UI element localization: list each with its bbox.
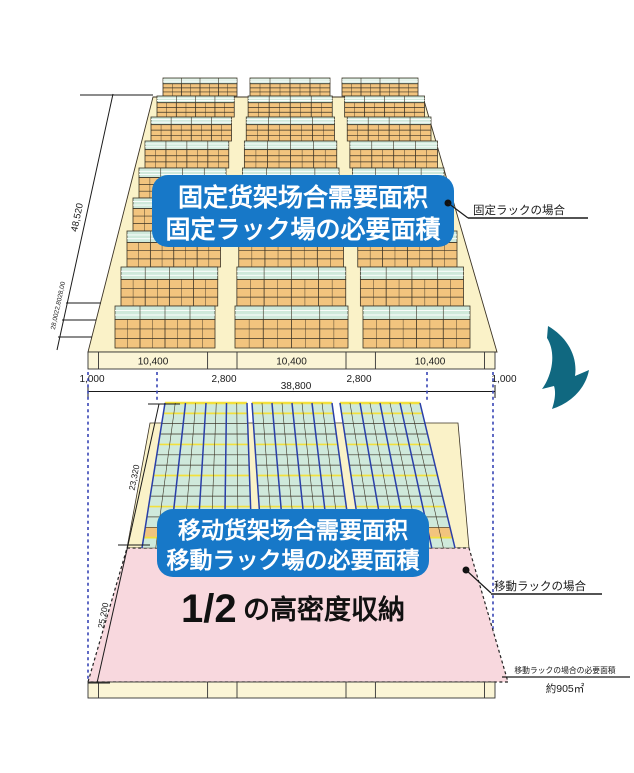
fixed-rack-badge-line2: 固定ラック場の必要面積 — [165, 215, 440, 244]
rack-row — [235, 306, 348, 348]
base-segment-label: 10,400 — [138, 357, 169, 368]
rack-row — [121, 267, 218, 306]
dim-aisle-left: 2,800 — [211, 374, 236, 385]
diagram-canvas: 10,400 10,400 10,400 1,000 2,800 2,800 1… — [0, 0, 634, 773]
mobile-rack-badge-line2: 移動ラック場の必要面積 — [167, 547, 421, 573]
fixed-rack-callout-label: 固定ラックの場合 — [473, 203, 565, 217]
rack-row — [244, 141, 336, 168]
fixed-rack-callout: 固定ラックの場合 — [445, 200, 589, 219]
rack-row — [345, 96, 425, 117]
mobile-rack-callout-label: 移動ラックの場合 — [494, 579, 586, 593]
mobile-rack-callout: 移動ラックの場合 — [463, 567, 603, 595]
fixed-rack-badge-line1: 固定货架场合需要面积 — [178, 183, 428, 212]
area-note: 移動ラックの場合の必要面積 約905㎡ — [502, 665, 630, 695]
mobile-rack-badge: 移动货架场合需要面积 移動ラック場の必要面積 — [157, 509, 429, 577]
rack-row — [145, 141, 229, 168]
arrow-down-icon — [542, 326, 589, 409]
rack-row — [157, 96, 234, 117]
width-dimensions: 1,000 2,800 2,800 1,000 38,800 — [79, 374, 516, 398]
rack-row — [163, 78, 237, 96]
area-note-value: 約905㎡ — [546, 682, 585, 695]
rack-row — [250, 78, 330, 96]
mobile-rack-base-strip — [88, 682, 495, 698]
dim-left-margin: 1,000 — [79, 374, 104, 385]
dim-aisle-right: 2,800 — [346, 374, 371, 385]
rack-row — [350, 141, 438, 168]
area-note-title: 移動ラックの場合の必要面積 — [514, 665, 616, 675]
base-segment-label: 10,400 — [415, 357, 446, 368]
rack-row — [347, 117, 431, 141]
rack-row — [363, 306, 470, 348]
rack-row — [151, 117, 232, 141]
fixed-rack-diagram: 10,400 10,400 10,400 1,000 2,800 2,800 1… — [50, 78, 588, 398]
rack-row — [360, 267, 463, 306]
rack-row — [246, 117, 334, 141]
base-segment-label: 10,400 — [276, 357, 307, 368]
dim-depth-rows: 28,0022,8028,00 — [50, 281, 67, 331]
dim-right-margin: 1,000 — [491, 374, 516, 385]
density-fraction: 1/2 — [181, 587, 237, 631]
rack-row — [342, 78, 418, 96]
warehouse-rack-comparison-diagram: 10,400 10,400 10,400 1,000 2,800 2,800 1… — [0, 0, 634, 773]
rack-row — [248, 96, 332, 117]
fixed-rack-badge: 固定货架场合需要面积 固定ラック場の必要面積 — [152, 175, 454, 247]
dim-total-width: 38,800 — [281, 381, 312, 392]
rack-row — [115, 306, 215, 348]
density-label: の高密度収納 — [243, 594, 405, 625]
mobile-rack-badge-line1: 移动货架场合需要面积 — [178, 517, 408, 543]
mobile-rack-diagram: 23,320 25,200 移动货架场合需要面积 移動ラック場の必要面積 1/2… — [88, 403, 630, 698]
fixed-rack-base-strip: 10,400 10,400 10,400 — [88, 352, 495, 369]
rack-row — [237, 267, 346, 306]
